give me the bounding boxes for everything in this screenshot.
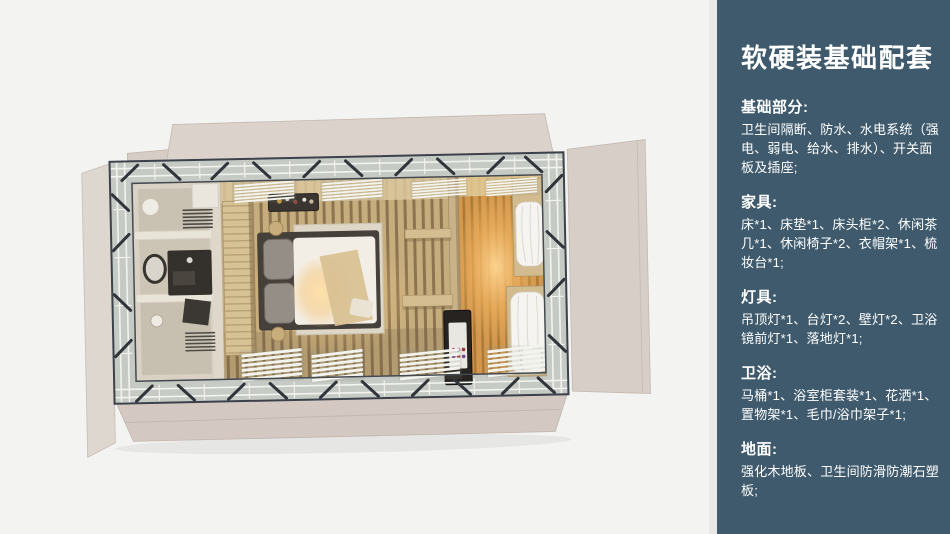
wardrobe — [222, 201, 255, 356]
section-body: 马桶*1、浴室柜套装*1、花洒*1、置物架*1、毛巾/浴巾架子*1; — [741, 386, 940, 424]
curtain — [515, 202, 543, 267]
section-basics: 基础部分: 卫生间隔断、防水、水电系统（强电、弱电、给水、排水）、开关面板及插座… — [741, 96, 940, 177]
bed — [257, 219, 384, 342]
panel-title: 软硬装基础配套 — [741, 42, 940, 75]
section-flooring: 地面: 强化木地板、卫生间防滑防潮石塑板; — [741, 438, 940, 500]
section-heading: 灯具: — [741, 286, 940, 307]
shower-head — [151, 315, 163, 327]
bedside-stool — [269, 221, 283, 235]
bathroom — [132, 181, 224, 381]
section-heading: 基础部分: — [741, 96, 940, 117]
bath-stool — [182, 299, 211, 326]
pillow — [264, 283, 295, 324]
section-body: 卫生间隔断、防水、水电系统（强电、弱电、给水、排水）、开关面板及插座; — [741, 120, 940, 177]
section-furniture: 家具: 床*1、床垫*1、床头柜*2、休闲茶几*1、休闲椅子*2、衣帽架*1、梳… — [741, 191, 940, 272]
section-heading: 地面: — [741, 438, 940, 459]
pillow — [263, 239, 294, 280]
info-panel: 软硬装基础配套 基础部分: 卫生间隔断、防水、水电系统（强电、弱电、给水、排水）… — [717, 0, 950, 534]
section-heading: 卫浴: — [741, 362, 940, 383]
section-body: 强化木地板、卫生间防滑防潮石塑板; — [741, 462, 940, 500]
section-lighting: 灯具: 吊顶灯*1、台灯*2、壁灯*2、卫浴镜前灯*1、落地灯*1; — [741, 286, 940, 348]
vanity-tray — [173, 271, 195, 285]
round-mirror — [144, 255, 166, 282]
section-heading: 家具: — [741, 191, 940, 212]
towel-roll — [142, 198, 159, 215]
bedside-stool — [271, 327, 285, 341]
section-sanitary: 卫浴: 马桶*1、浴室柜套装*1、花洒*1、置物架*1、毛巾/浴巾架子*1; — [741, 362, 940, 424]
slide: 软硬装基础配套 基础部分: 卫生间隔断、防水、水电系统（强电、弱电、给水、排水）… — [0, 0, 950, 534]
section-body: 床*1、床垫*1、床头柜*2、休闲茶几*1、休闲椅子*2、衣帽架*1、梳妆台*1… — [741, 215, 940, 272]
section-body: 吊顶灯*1、台灯*2、壁灯*2、卫浴镜前灯*1、落地灯*1; — [741, 310, 940, 348]
bathroom-door-panel — [192, 184, 218, 209]
panel-edge-strip — [709, 0, 717, 534]
room-render-illustration — [0, 0, 717, 534]
